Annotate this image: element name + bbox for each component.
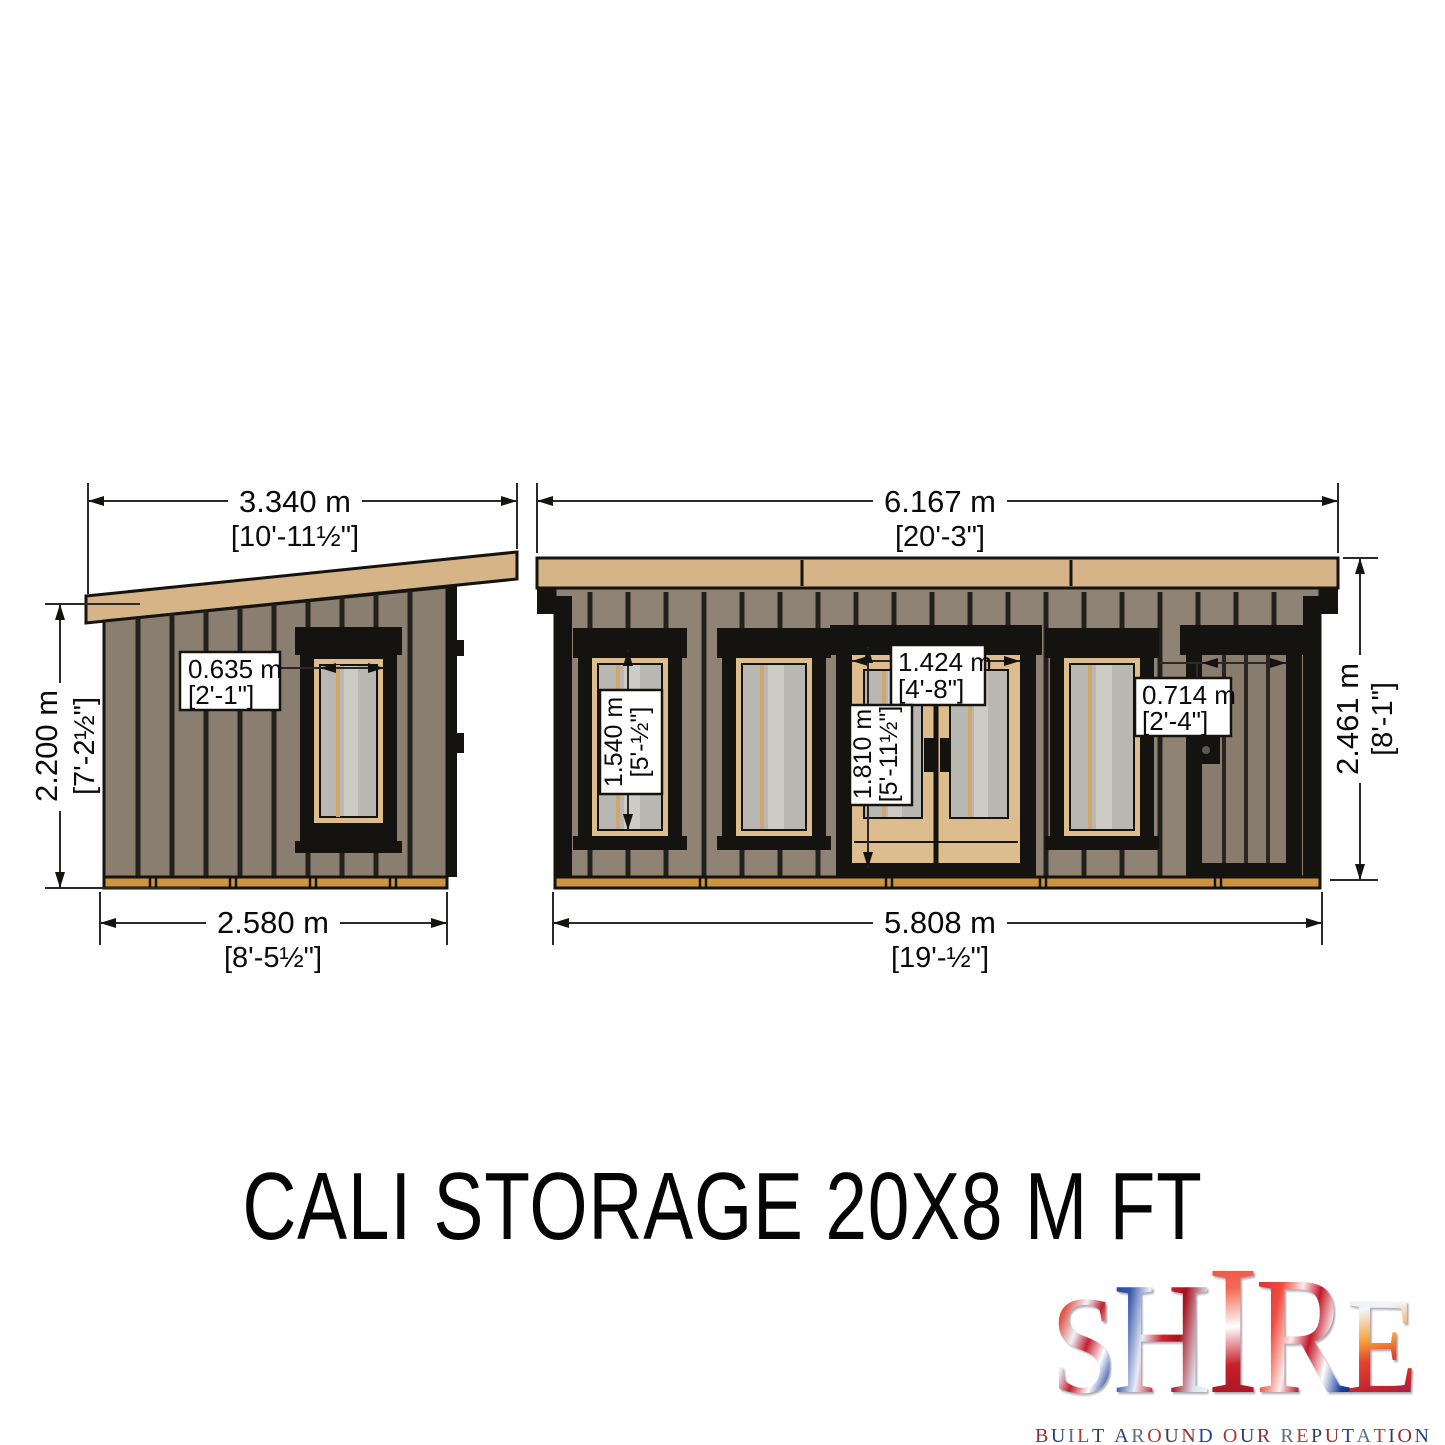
logo-letter-r: R — [1255, 1252, 1350, 1420]
window-sill — [717, 836, 831, 850]
dim-text-imperial: [8'-1"] — [1367, 682, 1399, 756]
dim-text-imperial: [5'-½"] — [626, 707, 654, 778]
window-glass-highlight — [1096, 665, 1112, 829]
dim-text-imperial: [2'-4"] — [1142, 706, 1208, 736]
dim-text: 1.424 m — [898, 647, 992, 677]
door-threshold — [836, 863, 1036, 877]
door-handle-left — [924, 738, 934, 772]
storage-door-knob — [1202, 746, 1210, 754]
dim-text: 3.340 m — [239, 484, 351, 519]
front-window-2 — [717, 628, 831, 850]
dim-side-base-width: 2.580 m [8'-5½"] — [100, 892, 447, 974]
dim-text-imperial: [19'-½"] — [891, 942, 989, 974]
dim-text: 2.461 m — [1330, 663, 1365, 775]
side-door-edge — [447, 585, 457, 877]
logo-letter-i: I — [1207, 1238, 1259, 1423]
dim-text-imperial: [20'-3"] — [895, 521, 985, 553]
front-corner-trim-left — [555, 596, 572, 877]
front-window-3 — [1045, 628, 1159, 850]
side-window-sill — [295, 841, 402, 853]
side-window-glass-highlight — [344, 666, 358, 816]
door-handle-right — [940, 738, 950, 772]
dim-text: 2.580 m — [217, 905, 329, 940]
side-door-hinge-upper — [457, 640, 464, 656]
shire-logo-wordmark: S H I R E — [1065, 1238, 1400, 1423]
dim-text-imperial: [10'-11½"] — [231, 521, 359, 553]
storage-door-threshold — [1186, 863, 1302, 877]
logo-letter-e: E — [1346, 1277, 1418, 1415]
dim-text: 6.167 m — [884, 484, 996, 519]
window-sill — [573, 836, 687, 850]
dim-text-imperial: [7'-2½"] — [69, 697, 101, 795]
side-elevation — [86, 552, 517, 888]
dim-text: 1.810 m — [849, 709, 877, 799]
dim-front-base-width: 5.808 m [19'-½"] — [553, 892, 1322, 974]
shire-logo: S H I R E BUILT AROUND OUR REPUTATION — [1035, 1238, 1429, 1445]
dim-front-overall-height: 2.461 m [8'-1"] — [1330, 558, 1399, 880]
side-window — [295, 627, 402, 853]
window-sill — [1045, 836, 1159, 850]
dim-text-imperial: [8'-5½"] — [224, 942, 322, 974]
dim-text-imperial: [5'-11½"] — [875, 706, 903, 803]
window-glass-highlight — [768, 665, 784, 829]
dim-text-imperial: [4'-8"] — [898, 674, 964, 704]
dim-text: 2.200 m — [29, 690, 64, 802]
side-door-hinge-lower — [457, 733, 464, 753]
logo-letter-h: H — [1113, 1258, 1211, 1418]
logo-letter-s: S — [1051, 1276, 1117, 1416]
dim-front-overall-width: 6.167 m [20'-3"] — [537, 483, 1338, 553]
front-base — [555, 877, 1320, 888]
technical-drawing-page: 3.340 m [10'-11½"] 6.167 m [20'-3"] 2.20… — [0, 0, 1445, 1445]
dim-text: 1.540 m — [600, 697, 628, 787]
front-roof-fascia — [537, 558, 1338, 588]
dim-text-imperial: [2'-1"] — [188, 680, 254, 710]
dim-text: 5.808 m — [884, 905, 996, 940]
